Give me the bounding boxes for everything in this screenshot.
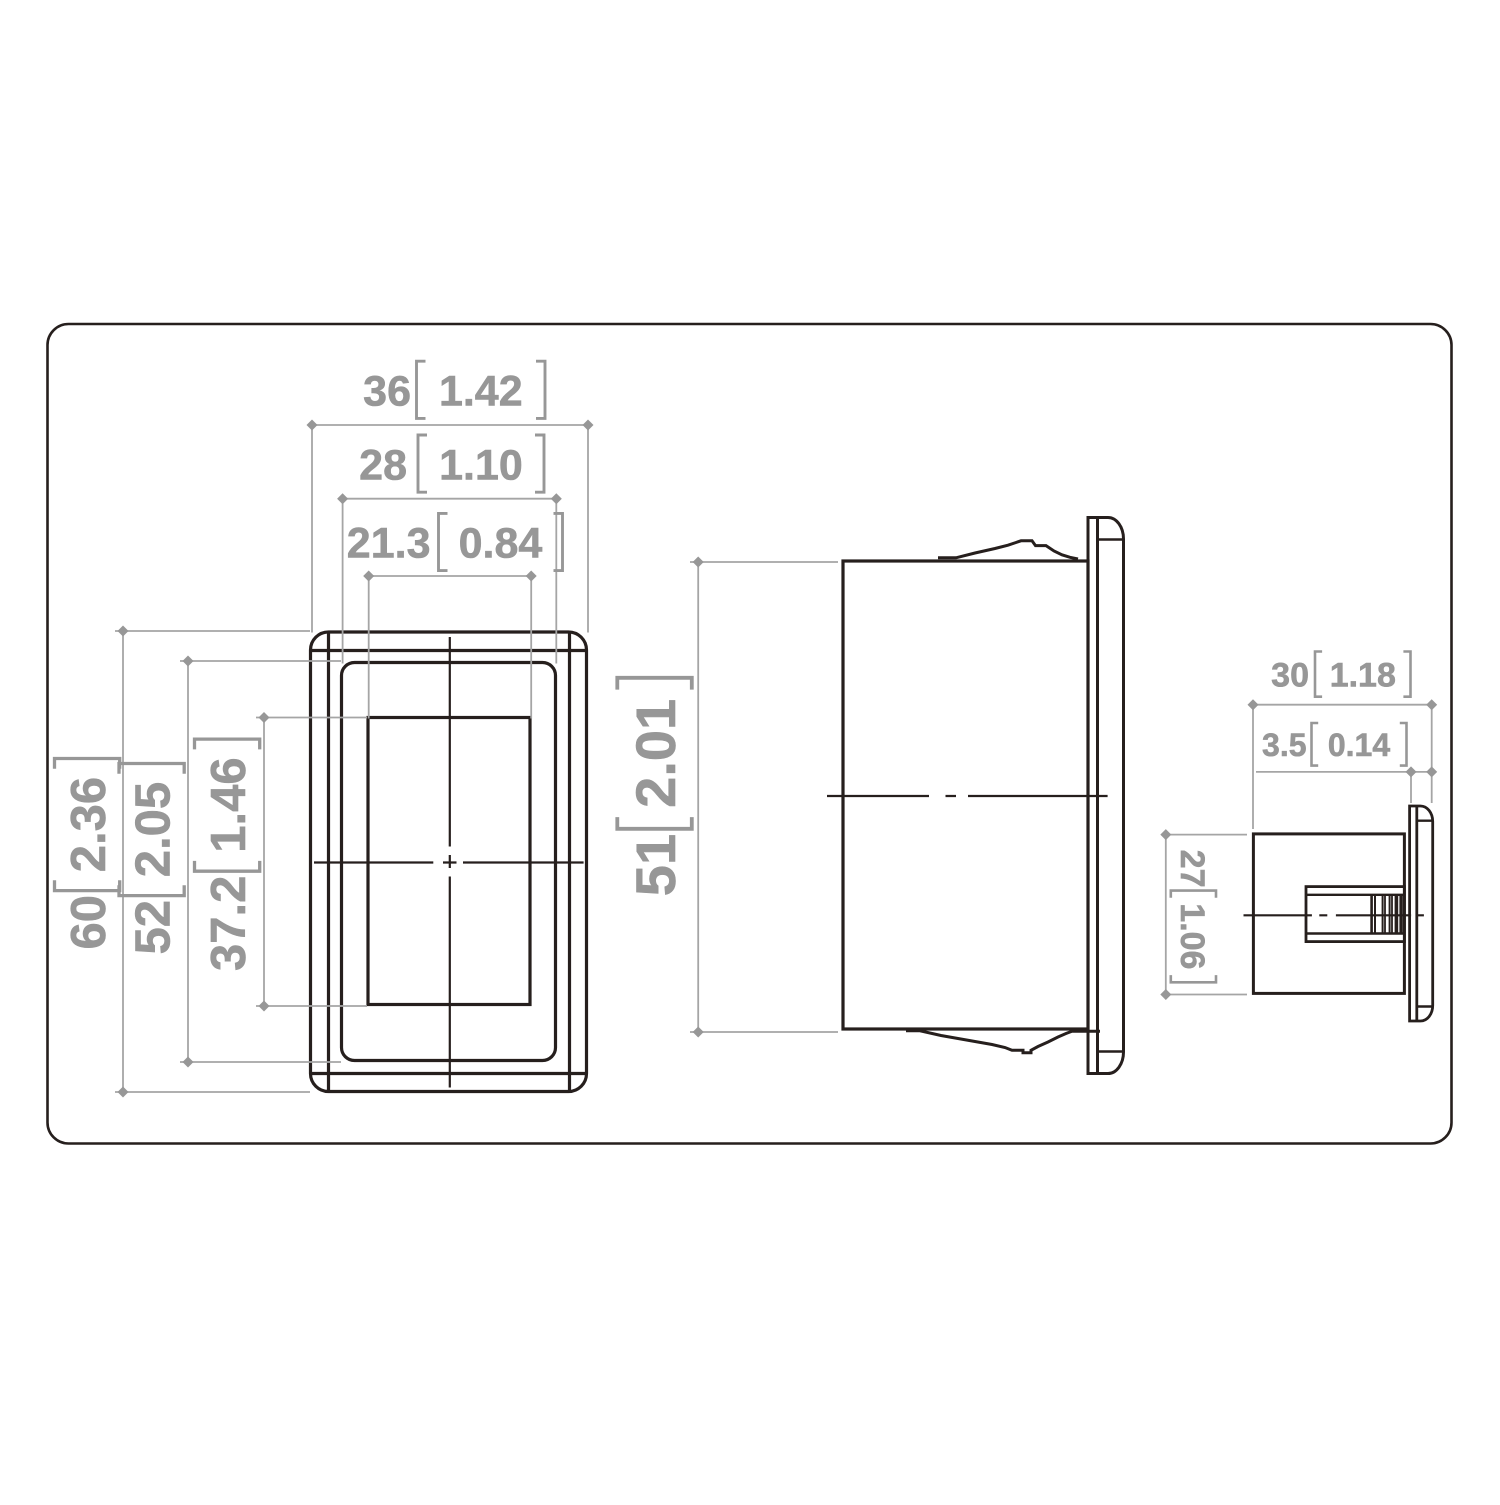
svg-text:1.46: 1.46 — [202, 757, 256, 852]
svg-text:52: 52 — [127, 900, 181, 955]
svg-text:51: 51 — [624, 834, 687, 896]
svg-text:60: 60 — [62, 895, 116, 950]
svg-text:2.36: 2.36 — [62, 777, 116, 872]
svg-text:2.05: 2.05 — [127, 782, 181, 877]
svg-text:36: 36 — [363, 368, 411, 416]
svg-text:21.3: 21.3 — [347, 520, 431, 568]
svg-text:1.42: 1.42 — [439, 368, 523, 416]
svg-text:1.06: 1.06 — [1173, 903, 1211, 969]
svg-text:3.5: 3.5 — [1262, 727, 1306, 763]
svg-text:28: 28 — [359, 441, 407, 489]
svg-text:2.01: 2.01 — [624, 699, 687, 808]
svg-text:27: 27 — [1173, 850, 1211, 888]
svg-text:37.2: 37.2 — [202, 876, 256, 971]
svg-text:0.84: 0.84 — [459, 520, 543, 568]
svg-text:0.14: 0.14 — [1328, 727, 1390, 763]
svg-text:1.18: 1.18 — [1330, 657, 1396, 695]
svg-text:30: 30 — [1271, 657, 1309, 695]
svg-text:1.10: 1.10 — [439, 441, 523, 489]
